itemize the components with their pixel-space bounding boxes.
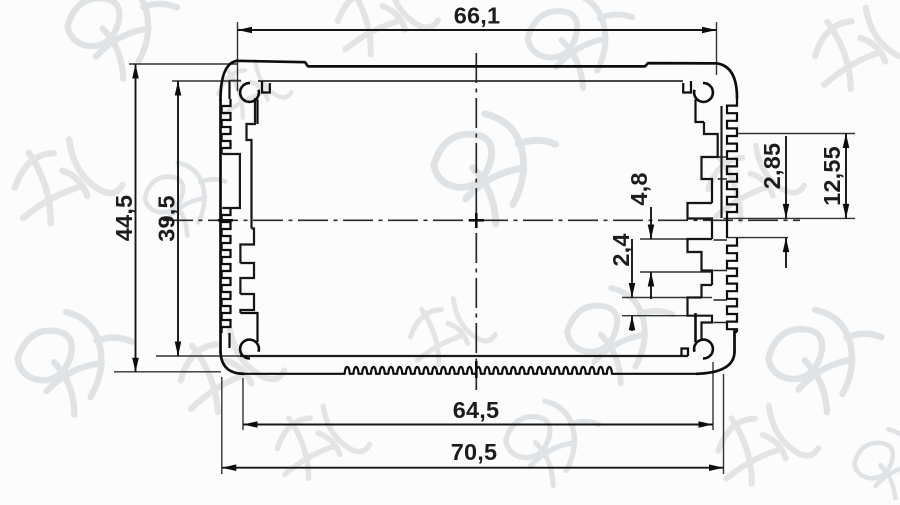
svg-text:66,1: 66,1 [454,3,501,29]
svg-text:70,5: 70,5 [451,439,498,465]
svg-text:44,5: 44,5 [111,195,137,242]
svg-text:64,5: 64,5 [453,397,500,423]
svg-text:39,5: 39,5 [154,195,180,242]
svg-text:2,85: 2,85 [759,143,785,190]
svg-text:4,8: 4,8 [626,172,652,205]
svg-text:2,4: 2,4 [608,233,634,266]
svg-text:12,55: 12,55 [819,146,845,206]
